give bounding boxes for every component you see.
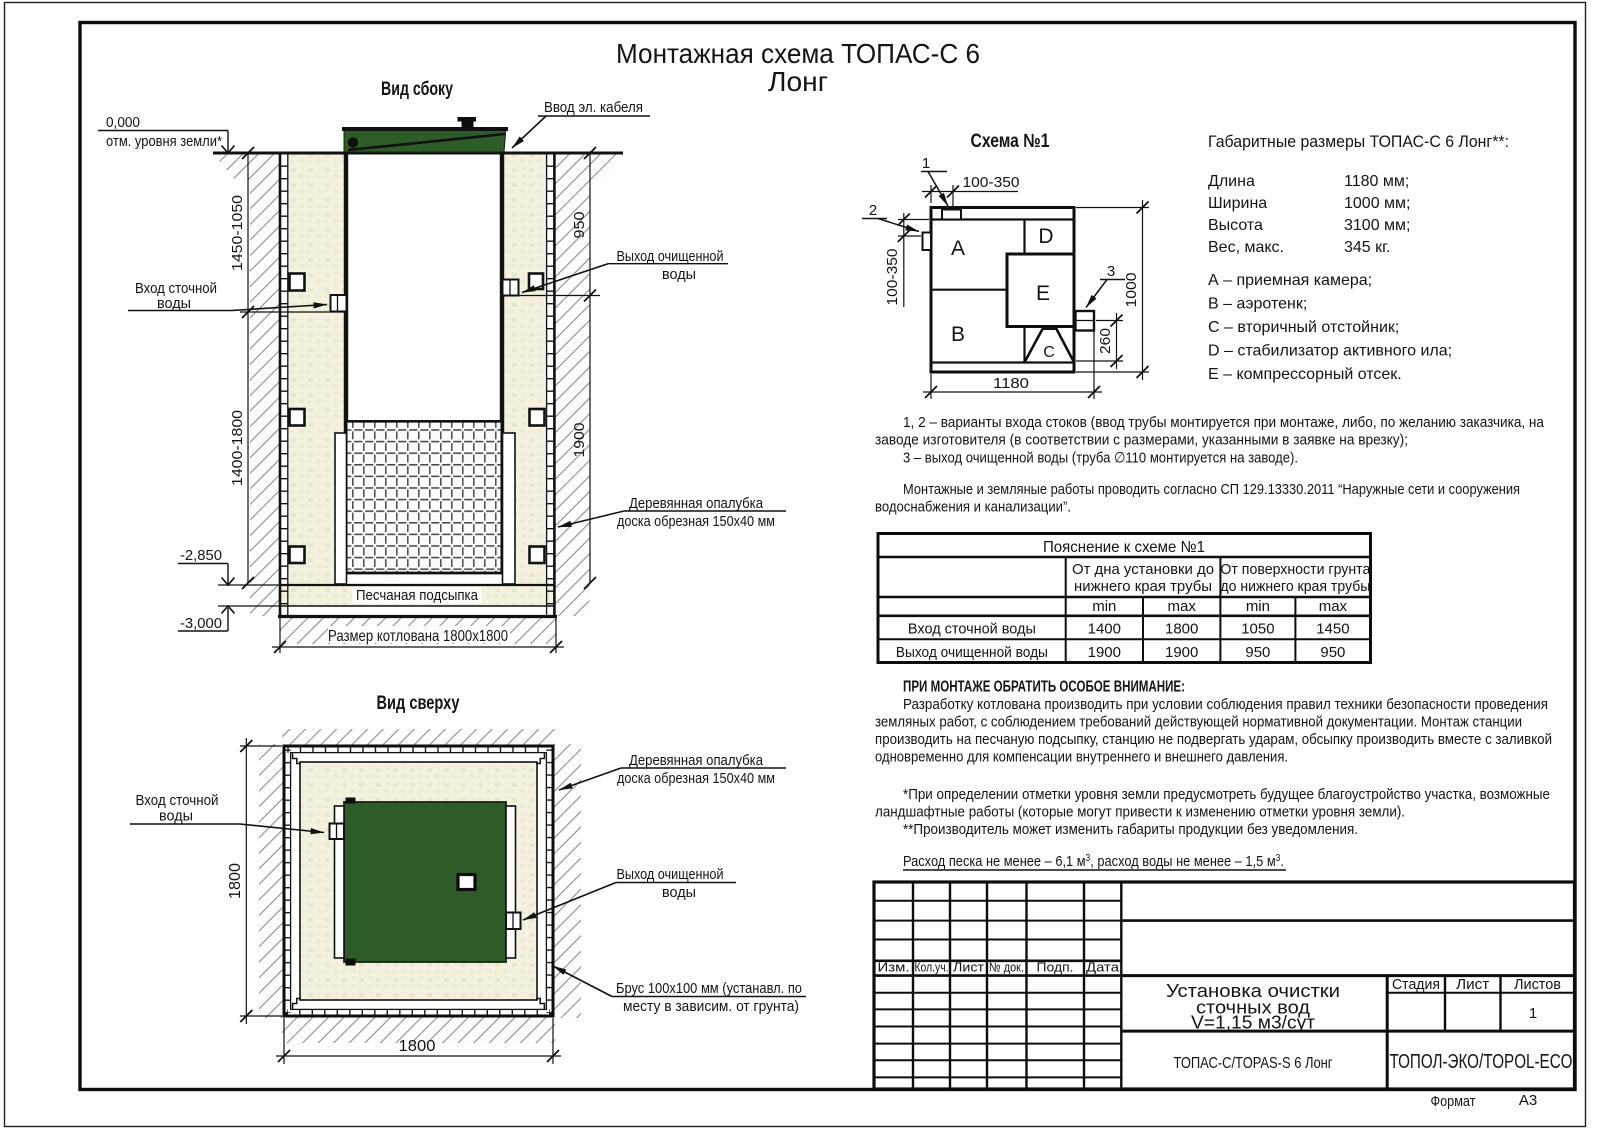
- svg-text:Габаритные размеры ТОПАС-С 6 Л: Габаритные размеры ТОПАС-С 6 Лонг**:: [1208, 133, 1509, 151]
- svg-text:В: В: [951, 323, 965, 346]
- svg-text:доска обрезная 150х40 мм: доска обрезная 150х40 мм: [617, 513, 775, 530]
- svg-text:А3: А3: [1519, 1092, 1537, 1109]
- svg-text:1800: 1800: [1165, 621, 1198, 638]
- svg-text:А: А: [951, 237, 965, 260]
- svg-text:воды: воды: [662, 266, 696, 283]
- svg-text:водоснабжения и канализации”.: водоснабжения и канализации”.: [875, 499, 1071, 516]
- svg-text:*При определении отметки уровн: *При определении отметки уровня земли пр…: [903, 786, 1550, 803]
- svg-text:Размер котлована 1800х1800: Размер котлована 1800х1800: [328, 628, 508, 645]
- svg-text:1400: 1400: [1088, 621, 1121, 638]
- svg-text:Вход сточной: Вход сточной: [136, 792, 219, 809]
- svg-text:-3,000: -3,000: [180, 616, 222, 632]
- svg-text:100-350: 100-350: [884, 249, 901, 306]
- svg-text:ландшафтные работы (которые мо: ландшафтные работы (которые могут привес…: [875, 804, 1405, 821]
- svg-text:Деревянная опалубка: Деревянная опалубка: [629, 752, 764, 769]
- svg-text:Длина: Длина: [1208, 173, 1255, 190]
- svg-text:0,000: 0,000: [106, 115, 140, 131]
- svg-text:1000: 1000: [1123, 273, 1140, 308]
- svg-text:Брус 100х100 мм (устанавл. по: Брус 100х100 мм (устанавл. по: [616, 980, 802, 997]
- svg-text:Деревянная опалубка: Деревянная опалубка: [629, 495, 764, 512]
- svg-text:Лист: Лист: [1456, 977, 1489, 993]
- svg-text:Монтажная схема ТОПАС-С 6: Монтажная схема ТОПАС-С 6: [616, 38, 980, 69]
- svg-text:Е – компрессорный отсек.: Е – компрессорный отсек.: [1208, 366, 1402, 383]
- svg-text:Ввод эл. кабеля: Ввод эл. кабеля: [544, 99, 643, 116]
- svg-text:max: max: [1319, 598, 1348, 615]
- svg-text:Формат: Формат: [1431, 1093, 1476, 1110]
- svg-text:воды: воды: [662, 884, 696, 901]
- svg-text:3 – выход очищенной воды (труб: 3 – выход очищенной воды (труба ∅110 мон…: [903, 449, 1298, 466]
- svg-text:Дата: Дата: [1086, 960, 1120, 975]
- svg-text:1180 мм;: 1180 мм;: [1344, 173, 1409, 190]
- svg-text:От дна установки до: От дна установки до: [1072, 561, 1214, 578]
- svg-text:Расход песка не менее – 6,1 м3: Расход песка не менее – 6,1 м3, расход в…: [903, 853, 1284, 870]
- svg-text:1: 1: [1529, 1005, 1537, 1022]
- svg-text:950: 950: [1245, 644, 1270, 661]
- svg-text:1: 1: [922, 155, 930, 172]
- svg-text:D – стабилизатор активного ила: D – стабилизатор активного ила;: [1208, 343, 1452, 360]
- svg-text:От поверхности грунта: От поверхности грунта: [1220, 561, 1371, 578]
- svg-text:max: max: [1168, 598, 1197, 615]
- svg-text:3100 мм;: 3100 мм;: [1344, 217, 1410, 234]
- svg-text:доска обрезная 150х40 мм: доска обрезная 150х40 мм: [617, 770, 775, 787]
- svg-text:1450-1050: 1450-1050: [229, 195, 246, 271]
- svg-text:100-350: 100-350: [963, 174, 1020, 191]
- svg-text:Монтажные и земляные работы пр: Монтажные и земляные работы проводить со…: [903, 481, 1520, 498]
- svg-text:1800: 1800: [399, 1038, 436, 1055]
- svg-text:№ док.: № док.: [989, 960, 1024, 975]
- svg-text:-2,850: -2,850: [180, 548, 222, 564]
- svg-text:Лист: Лист: [953, 960, 984, 975]
- svg-text:В – аэротенк;: В – аэротенк;: [1208, 296, 1307, 313]
- svg-text:Е: Е: [1036, 282, 1050, 305]
- svg-text:нижнего края трубы: нижнего края трубы: [1074, 578, 1212, 595]
- svg-text:Песчаная подсыпка: Песчаная подсыпка: [356, 587, 479, 604]
- svg-text:С – вторичный отстойник;: С – вторичный отстойник;: [1208, 319, 1399, 336]
- svg-text:ТОПОЛ-ЭКО/TOPOL-ECO: ТОПОЛ-ЭКО/TOPOL-ECO: [1390, 1051, 1573, 1073]
- svg-text:С: С: [1043, 344, 1055, 361]
- svg-text:1400-1800: 1400-1800: [229, 410, 246, 486]
- svg-text:Высота: Высота: [1208, 217, 1263, 234]
- svg-text:Выход очищенной: Выход очищенной: [617, 866, 724, 883]
- svg-text:1000 мм;: 1000 мм;: [1344, 195, 1410, 212]
- svg-text:Схема №1: Схема №1: [971, 131, 1050, 152]
- svg-text:А – приемная камера;: А – приемная камера;: [1208, 272, 1372, 289]
- svg-text:Лонг: Лонг: [768, 66, 828, 97]
- svg-text:ТОПАС-С/TOPAS-S 6 Лонг: ТОПАС-С/TOPAS-S 6 Лонг: [1174, 1055, 1333, 1072]
- svg-text:min: min: [1246, 598, 1270, 615]
- svg-text:3: 3: [1107, 263, 1115, 280]
- svg-text:земляных работ, с соблюдением: земляных работ, с соблюдением требований…: [875, 714, 1522, 731]
- svg-text:Вид сбоку: Вид сбоку: [381, 79, 453, 100]
- svg-text:месту в зависим. от грунта): месту в зависим. от грунта): [623, 998, 799, 1015]
- svg-text:Вес, макс.: Вес, макс.: [1208, 239, 1284, 256]
- svg-text:Пояснение к схеме №1: Пояснение к схеме №1: [1043, 539, 1205, 556]
- svg-text:1900: 1900: [1088, 644, 1121, 661]
- svg-text:2: 2: [869, 202, 877, 219]
- svg-text:min: min: [1092, 598, 1116, 615]
- svg-text:1900: 1900: [1165, 644, 1198, 661]
- svg-text:одновременно для компенсации в: одновременно для компенсации внутреннего…: [875, 749, 1288, 766]
- svg-text:воды: воды: [157, 295, 191, 312]
- svg-text:воды: воды: [159, 808, 193, 825]
- svg-text:**Производитель может изменить: **Производитель может изменить габариты …: [903, 821, 1358, 838]
- svg-text:345 кг.: 345 кг.: [1344, 239, 1390, 256]
- svg-text:Стадия: Стадия: [1392, 977, 1440, 993]
- svg-text:отм. уровня земли*: отм. уровня земли*: [106, 134, 222, 150]
- svg-text:Выход очищенной воды: Выход очищенной воды: [896, 644, 1048, 661]
- svg-text:D: D: [1038, 225, 1053, 248]
- svg-text:Выход очищенной: Выход очищенной: [617, 248, 724, 265]
- svg-text:до нижнего края трубы: до нижнего края трубы: [1220, 578, 1370, 595]
- svg-text:1, 2 – варианты входа стоков: 1, 2 – варианты входа стоков (ввод трубы…: [903, 414, 1545, 431]
- svg-text:260: 260: [1097, 328, 1114, 354]
- svg-text:950: 950: [1320, 644, 1345, 661]
- svg-text:Листов: Листов: [1514, 977, 1561, 993]
- svg-text:заводе изготовителя (в соответ: заводе изготовителя (в соответствии с ра…: [875, 432, 1408, 449]
- svg-text:ПРИ МОНТАЖЕ ОБРАТИТЬ ОСОБОЕ ВН: ПРИ МОНТАЖЕ ОБРАТИТЬ ОСОБОЕ ВНИМАНИЕ:: [903, 679, 1185, 696]
- svg-text:V=1,15 м3/сут: V=1,15 м3/сут: [1191, 1012, 1316, 1033]
- svg-text:Изм.: Изм.: [878, 960, 910, 975]
- svg-text:Вид сверху: Вид сверху: [377, 693, 460, 714]
- svg-text:Вход сточной воды: Вход сточной воды: [908, 621, 1036, 638]
- svg-text:1800: 1800: [227, 863, 244, 899]
- svg-text:1050: 1050: [1241, 621, 1274, 638]
- svg-text:1450: 1450: [1316, 621, 1349, 638]
- svg-text:Разработку котлована производи: Разработку котлована производить при усл…: [903, 696, 1548, 713]
- svg-text:Подп.: Подп.: [1037, 960, 1074, 975]
- svg-text:Кол.уч.: Кол.уч.: [915, 960, 949, 975]
- svg-text:Ширина: Ширина: [1208, 195, 1267, 212]
- svg-text:производить на песчаную подсып: производить на песчаную подсыпку, станци…: [875, 731, 1552, 748]
- svg-text:1900: 1900: [571, 423, 588, 458]
- svg-text:950: 950: [571, 212, 588, 239]
- svg-text:1180: 1180: [993, 375, 1029, 392]
